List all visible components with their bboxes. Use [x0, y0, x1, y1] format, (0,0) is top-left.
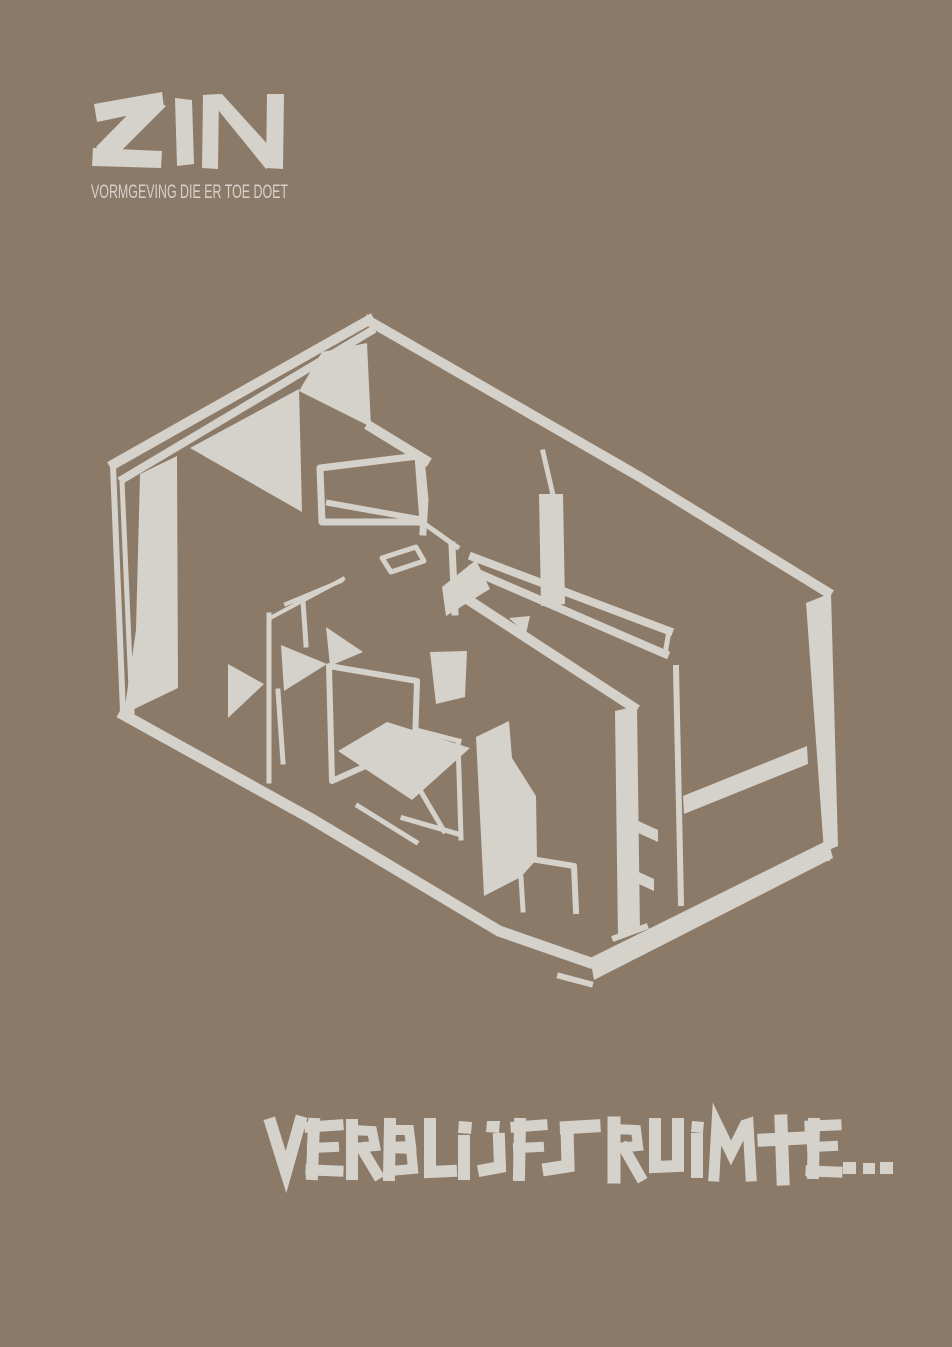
svg-text:VORMGEVING DIE ER TOE DOET: VORMGEVING DIE ER TOE DOET	[91, 182, 288, 203]
